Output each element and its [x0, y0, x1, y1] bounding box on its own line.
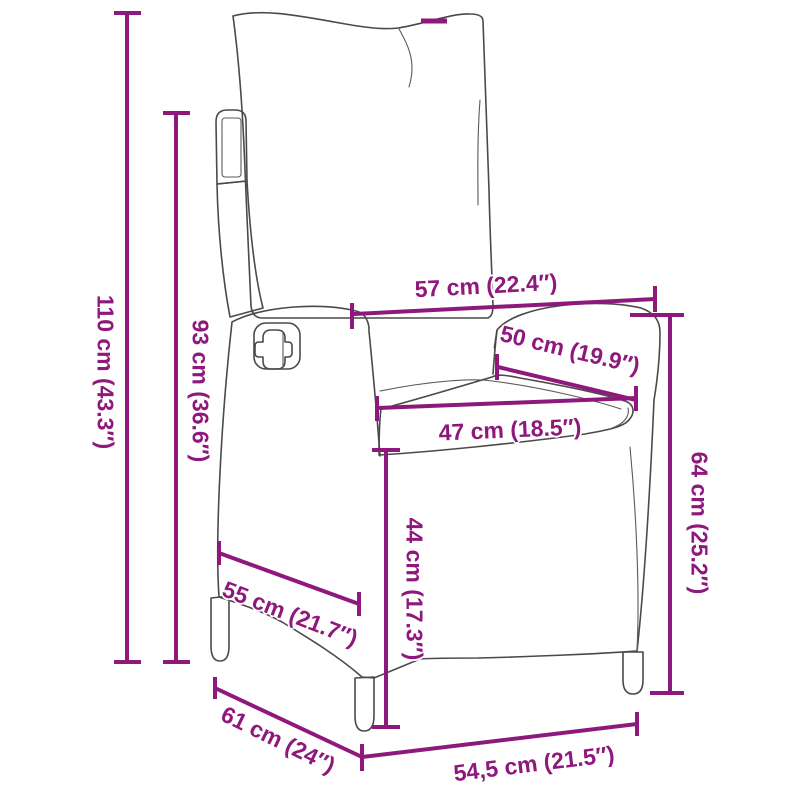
backrest-post-cap-inner	[222, 118, 241, 177]
seat-gap	[369, 330, 494, 411]
chair-drawing	[0, 0, 800, 800]
front-left-leg	[211, 596, 229, 661]
front-center-leg	[355, 677, 374, 731]
side-panel-seam	[630, 447, 638, 650]
recline-handle-lever	[255, 330, 292, 369]
backrest-post	[217, 181, 263, 317]
dimension-label-seat-height: 44 cm (17.3″)	[401, 518, 428, 661]
product-dimension-diagram: 110 cm (43.3″) 93 cm (36.6″) 57 cm (22.4…	[0, 0, 800, 800]
dimension-label-overall-height: 110 cm (43.3″)	[92, 295, 119, 449]
dimension-label-backrest-height: 93 cm (36.6″)	[187, 320, 214, 463]
front-right-leg	[623, 652, 643, 694]
cushion-crease-right	[478, 100, 480, 205]
dim-seat-height	[372, 450, 400, 727]
back-cushion	[233, 13, 493, 318]
dimension-label-armrest-height: 64 cm (25.2″)	[686, 452, 713, 595]
cushion-crease	[399, 29, 412, 87]
